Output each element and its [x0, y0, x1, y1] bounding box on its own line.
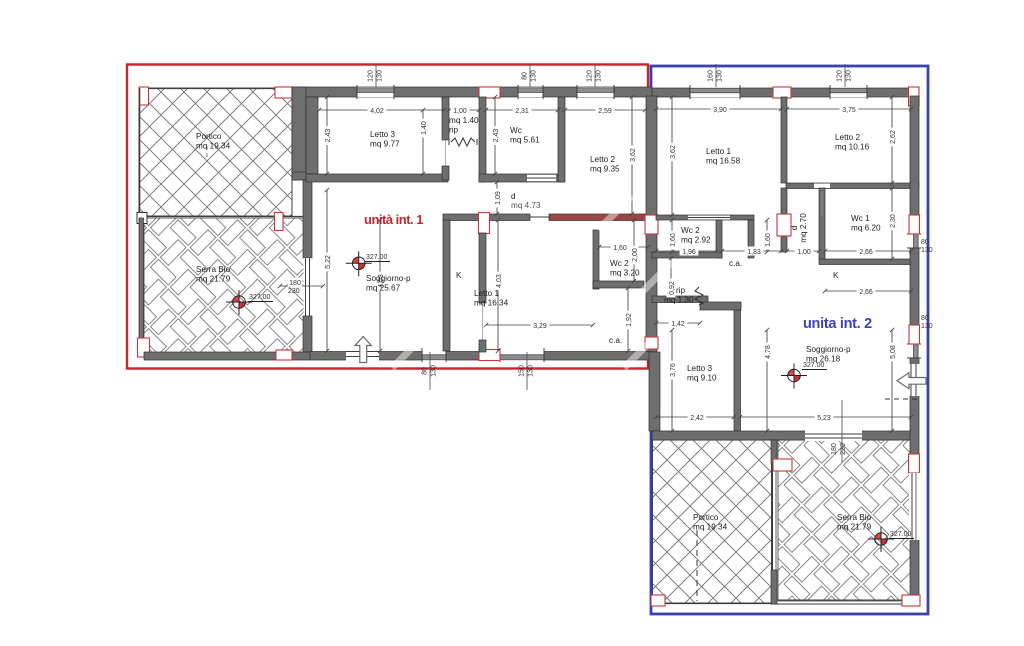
- svg-text:2,66: 2,66: [859, 289, 873, 296]
- svg-text:Letto 2: Letto 2: [590, 155, 615, 164]
- svg-text:mq 3.20: mq 3.20: [610, 269, 640, 278]
- svg-text:1,00: 1,00: [453, 108, 467, 115]
- svg-text:Wc 1: Wc 1: [851, 214, 870, 223]
- svg-text:1,83: 1,83: [747, 249, 761, 256]
- svg-text:1,96: 1,96: [682, 249, 696, 256]
- svg-text:unità int. 1: unità int. 1: [364, 212, 423, 227]
- svg-text:327.00: 327.00: [890, 531, 912, 538]
- svg-text:230: 230: [840, 443, 847, 455]
- svg-text:80: 80: [522, 72, 529, 80]
- svg-text:150: 150: [519, 365, 526, 377]
- svg-text:327.00: 327.00: [366, 254, 388, 261]
- svg-text:Letto 3: Letto 3: [370, 130, 395, 139]
- svg-text:80: 80: [921, 239, 929, 246]
- svg-text:80: 80: [422, 367, 429, 375]
- svg-text:130: 130: [921, 247, 933, 254]
- svg-text:mq 1.40: mq 1.40: [449, 116, 479, 125]
- svg-text:mq 4.73: mq 4.73: [511, 201, 541, 210]
- svg-text:rip: rip: [449, 126, 459, 135]
- svg-text:130: 130: [846, 70, 853, 82]
- svg-text:rip: rip: [676, 286, 686, 295]
- svg-text:mq 19.34: mq 19.34: [693, 523, 728, 532]
- svg-text:2,62: 2,62: [890, 130, 897, 144]
- svg-text:1,92: 1,92: [626, 313, 633, 327]
- svg-text:mq 10.16: mq 10.16: [835, 143, 870, 152]
- svg-text:2,43: 2,43: [325, 129, 332, 143]
- svg-text:c.a.: c.a.: [609, 336, 622, 345]
- svg-text:mq 2.92: mq 2.92: [681, 236, 711, 245]
- svg-text:5,23: 5,23: [817, 415, 831, 422]
- svg-text:1,60: 1,60: [670, 233, 677, 247]
- svg-text:Letto 2: Letto 2: [835, 133, 860, 142]
- svg-text:5,08: 5,08: [890, 345, 897, 359]
- svg-text:327.00: 327.00: [249, 294, 271, 301]
- svg-text:mq 5.61: mq 5.61: [510, 136, 540, 145]
- svg-text:130: 130: [377, 70, 384, 82]
- svg-text:4,03: 4,03: [496, 274, 503, 288]
- svg-text:Portico: Portico: [196, 132, 222, 141]
- svg-text:Wc 2: Wc 2: [610, 259, 629, 268]
- svg-text:Letto 1: Letto 1: [474, 289, 499, 298]
- svg-text:unita int. 2: unita int. 2: [803, 316, 872, 332]
- svg-text:Serra Bio: Serra Bio: [196, 265, 231, 274]
- svg-text:2,00: 2,00: [632, 248, 639, 262]
- svg-text:c.a.: c.a.: [729, 259, 742, 268]
- svg-text:2,43: 2,43: [493, 129, 500, 143]
- svg-text:5,22: 5,22: [325, 255, 332, 269]
- svg-text:K: K: [456, 271, 462, 280]
- svg-text:1,60: 1,60: [613, 245, 627, 252]
- svg-text:3,62: 3,62: [630, 148, 637, 162]
- svg-text:130: 130: [717, 70, 724, 82]
- svg-text:mq 9.77: mq 9.77: [370, 140, 400, 149]
- svg-text:mq 16.34: mq 16.34: [474, 299, 509, 308]
- svg-text:180: 180: [831, 443, 838, 455]
- svg-text:3,75: 3,75: [842, 107, 856, 114]
- svg-text:130: 130: [921, 323, 933, 330]
- svg-text:Letto 3: Letto 3: [687, 364, 712, 373]
- svg-text:Serra Bio: Serra Bio: [837, 513, 872, 522]
- svg-text:Letto 1: Letto 1: [706, 147, 731, 156]
- svg-text:3,76: 3,76: [670, 363, 677, 377]
- svg-text:d: d: [790, 225, 799, 230]
- svg-text:Soggiorno-p: Soggiorno-p: [366, 274, 411, 283]
- svg-text:Wc 2: Wc 2: [681, 226, 700, 235]
- svg-text:mq 19.34: mq 19.34: [196, 142, 231, 151]
- svg-text:3,90: 3,90: [713, 107, 727, 114]
- svg-text:130: 130: [528, 365, 535, 377]
- svg-text:Wc: Wc: [510, 126, 522, 135]
- svg-text:2,30: 2,30: [890, 214, 897, 228]
- svg-text:1,40: 1,40: [421, 121, 428, 135]
- svg-text:2,59: 2,59: [598, 108, 612, 115]
- svg-text:3,29: 3,29: [533, 323, 547, 330]
- svg-text:160: 160: [708, 70, 715, 82]
- svg-text:327.00: 327.00: [803, 362, 825, 369]
- svg-text:80: 80: [921, 315, 929, 322]
- svg-text:1,42: 1,42: [671, 321, 685, 328]
- svg-text:4,02: 4,02: [370, 108, 384, 115]
- svg-text:2,42: 2,42: [690, 415, 704, 422]
- svg-text:mq 21.79: mq 21.79: [196, 275, 231, 284]
- svg-text:mq 21.79: mq 21.79: [837, 523, 872, 532]
- svg-text:mq 2.70: mq 2.70: [799, 213, 808, 243]
- svg-text:0,92: 0,92: [669, 281, 676, 295]
- svg-text:1,60: 1,60: [765, 233, 772, 247]
- svg-text:1,00: 1,00: [797, 249, 811, 256]
- svg-text:180: 180: [289, 280, 301, 287]
- svg-text:120: 120: [837, 70, 844, 82]
- svg-text:mq 6.20: mq 6.20: [851, 224, 881, 233]
- svg-text:120: 120: [587, 70, 594, 82]
- svg-text:Soggiorno-p: Soggiorno-p: [806, 345, 851, 354]
- svg-text:K: K: [833, 271, 839, 280]
- svg-text:mq 25.67: mq 25.67: [366, 284, 401, 293]
- svg-text:2,31: 2,31: [515, 108, 529, 115]
- svg-text:d: d: [511, 192, 516, 201]
- svg-text:2,66: 2,66: [859, 249, 873, 256]
- svg-text:mq 1.30: mq 1.30: [664, 296, 694, 305]
- svg-text:mq 9.35: mq 9.35: [590, 165, 620, 174]
- svg-text:230: 230: [288, 288, 300, 295]
- svg-text:130: 130: [596, 70, 603, 82]
- svg-text:120: 120: [368, 70, 375, 82]
- svg-text:Portico: Portico: [693, 513, 719, 522]
- svg-text:mq 9.10: mq 9.10: [687, 374, 717, 383]
- svg-text:130: 130: [531, 70, 538, 82]
- svg-text:mq 16.58: mq 16.58: [706, 157, 741, 166]
- svg-text:1,09: 1,09: [495, 191, 502, 205]
- svg-text:3,62: 3,62: [670, 145, 677, 159]
- svg-text:4,78: 4,78: [765, 345, 772, 359]
- svg-text:130: 130: [431, 365, 438, 377]
